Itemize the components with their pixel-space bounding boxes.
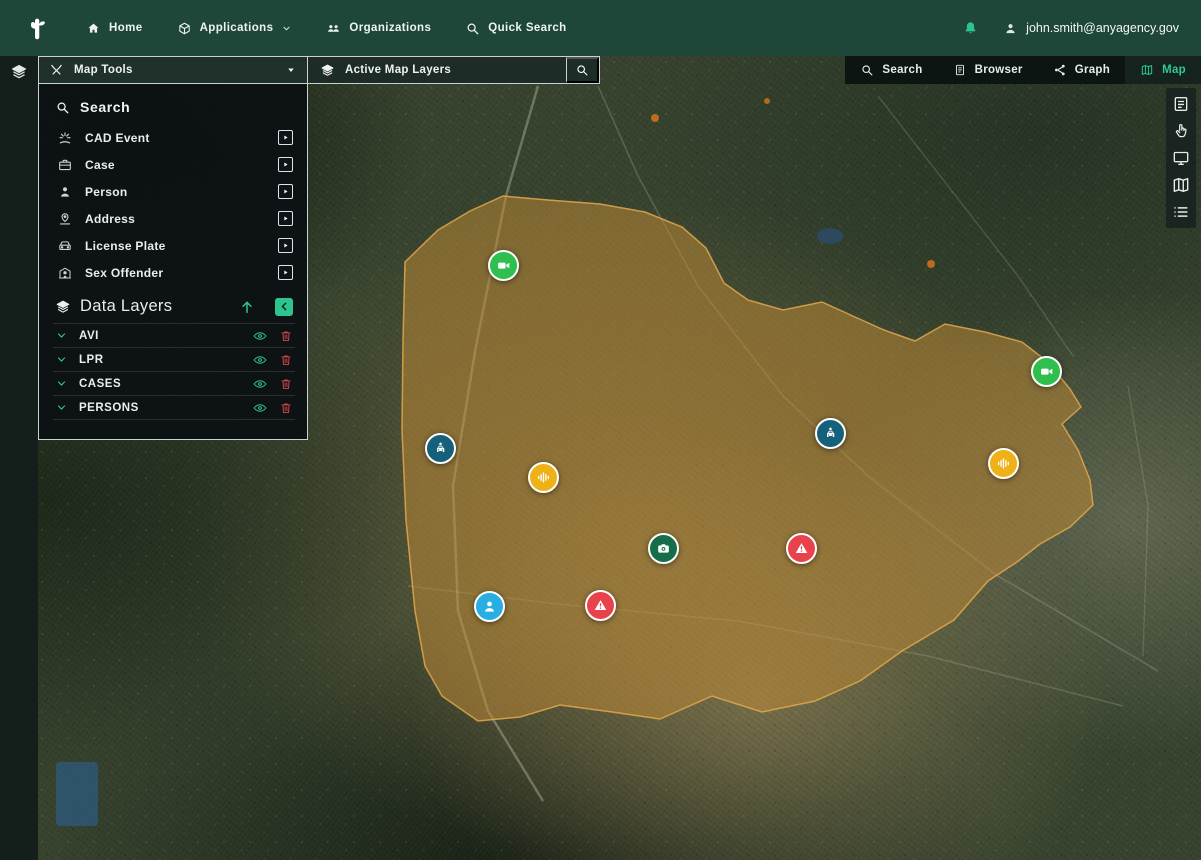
left-rail: [0, 56, 38, 860]
search-item-label: Case: [85, 158, 115, 172]
case-icon: [57, 157, 73, 173]
marker-person[interactable]: [474, 591, 505, 622]
document-icon: [953, 63, 967, 77]
search-section-title: Search: [80, 99, 130, 115]
view-button-search[interactable]: Search: [845, 56, 937, 84]
eye-visibility-icon[interactable]: [252, 400, 268, 416]
expand-sex-offender-button[interactable]: [278, 265, 293, 280]
search-item-label: Address: [85, 212, 135, 226]
search-item-label: License Plate: [85, 239, 166, 253]
view-button-graph[interactable]: Graph: [1038, 56, 1125, 84]
user-email: john.smith@anyagency.gov: [1026, 21, 1179, 35]
marker-audio-sensor[interactable]: [528, 462, 559, 493]
caret-down-icon: [285, 64, 297, 76]
eye-visibility-icon[interactable]: [252, 328, 268, 344]
marker-alert[interactable]: [585, 590, 616, 621]
layer-row-persons: PERSONS: [53, 395, 295, 420]
graph-icon: [1053, 63, 1067, 77]
brand-logo[interactable]: [22, 7, 52, 49]
layer-label: PERSONS: [79, 402, 139, 414]
search-icon: [575, 63, 589, 77]
view-switch-bar: SearchBrowserGraphMap: [845, 56, 1201, 84]
nav-item-label: Organizations: [349, 22, 431, 34]
view-button-label: Search: [882, 64, 922, 76]
collapse-panel-button[interactable]: [275, 298, 293, 316]
data-layer-list: AVILPRCASESPERSONS: [53, 323, 295, 420]
organizations-icon: [326, 21, 341, 36]
expand-case-button[interactable]: [278, 157, 293, 172]
trash-icon[interactable]: [279, 377, 293, 391]
map-tools-dropdown[interactable]: Map Tools: [38, 56, 308, 84]
view-button-label: Graph: [1075, 64, 1110, 76]
chevron-down-icon[interactable]: [55, 401, 68, 414]
marker-video-camera[interactable]: [488, 250, 519, 281]
marker-avi-vehicle[interactable]: [815, 418, 846, 449]
person-icon: [57, 184, 73, 200]
trash-icon[interactable]: [279, 353, 293, 367]
search-icon: [860, 63, 874, 77]
trash-icon[interactable]: [279, 329, 293, 343]
notification-bell-icon[interactable]: [962, 20, 979, 37]
layers-icon: [55, 299, 71, 315]
layer-label: CASES: [79, 378, 121, 390]
data-layers-header: Data Layers: [53, 286, 295, 323]
layer-row-lpr: LPR: [53, 347, 295, 371]
search-item-case[interactable]: Case: [53, 151, 295, 178]
nav-item-applications[interactable]: Applications: [177, 21, 293, 36]
trash-icon[interactable]: [279, 401, 293, 415]
license-plate-icon: [57, 238, 73, 254]
cad-event-icon: [57, 130, 73, 146]
nav-item-label: Applications: [200, 22, 274, 34]
nav-item-label: Home: [109, 22, 143, 34]
active-map-layers-bar[interactable]: Active Map Layers: [308, 56, 600, 84]
top-nav: HomeApplicationsOrganizationsQuick Searc…: [0, 0, 1201, 56]
layers-icon: [320, 63, 335, 78]
search-section-header: Search: [53, 92, 295, 124]
search-item-cad-event[interactable]: CAD Event: [53, 124, 295, 151]
map-icon: [1140, 63, 1154, 77]
view-button-browser[interactable]: Browser: [938, 56, 1038, 84]
nav-item-quick-search[interactable]: Quick Search: [465, 21, 566, 36]
marker-audio-sensor[interactable]: [988, 448, 1019, 479]
search-icon: [465, 21, 480, 36]
user-menu[interactable]: john.smith@anyagency.gov: [1003, 21, 1179, 36]
pointer-hand-icon[interactable]: [1171, 121, 1191, 141]
map-tools-panel: Map Tools Search CAD EventCasePersonAddr…: [38, 56, 308, 440]
expand-address-button[interactable]: [278, 211, 293, 226]
eye-visibility-icon[interactable]: [252, 352, 268, 368]
main-nav: HomeApplicationsOrganizationsQuick Searc…: [86, 21, 567, 36]
expand-cad-event-button[interactable]: [278, 130, 293, 145]
active-map-layers-label: Active Map Layers: [345, 64, 451, 76]
marker-avi-vehicle[interactable]: [425, 433, 456, 464]
arrow-up-icon[interactable]: [238, 298, 256, 316]
map-tools-label: Map Tools: [74, 64, 133, 76]
chevron-down-icon[interactable]: [55, 329, 68, 342]
list-icon[interactable]: [1171, 202, 1191, 222]
layers-search-button[interactable]: [566, 57, 599, 83]
marker-video-camera[interactable]: [1031, 356, 1062, 387]
chevron-down-icon[interactable]: [55, 353, 68, 366]
expand-license-plate-button[interactable]: [278, 238, 293, 253]
applications-icon: [177, 21, 192, 36]
search-items: CAD EventCasePersonAddressLicense PlateS…: [53, 124, 295, 286]
search-item-license-plate[interactable]: License Plate: [53, 232, 295, 259]
nav-item-label: Quick Search: [488, 22, 566, 34]
data-layers-title: Data Layers: [80, 297, 172, 316]
search-item-label: CAD Event: [85, 131, 150, 145]
view-button-map[interactable]: Map: [1125, 56, 1201, 84]
user-icon: [1003, 21, 1018, 36]
topnav-right: john.smith@anyagency.gov: [962, 20, 1179, 37]
view-button-label: Browser: [975, 64, 1023, 76]
layer-label: AVI: [79, 330, 99, 342]
layer-row-avi: AVI: [53, 323, 295, 347]
home-icon: [86, 21, 101, 36]
monitor-icon[interactable]: [1171, 148, 1191, 168]
search-item-person[interactable]: Person: [53, 178, 295, 205]
layer-row-cases: CASES: [53, 371, 295, 395]
map-canvas[interactable]: Map Tools Search CAD EventCasePersonAddr…: [38, 56, 1201, 860]
sex-offender-icon: [57, 265, 73, 281]
marker-photo-camera[interactable]: [648, 533, 679, 564]
expand-person-button[interactable]: [278, 184, 293, 199]
chevron-down-icon: [281, 23, 292, 34]
right-tool-rail: [1166, 88, 1196, 228]
search-item-label: Person: [85, 185, 127, 199]
address-icon: [57, 211, 73, 227]
tools-icon: [49, 63, 64, 78]
nav-item-home[interactable]: Home: [86, 21, 143, 36]
layer-label: LPR: [79, 354, 104, 366]
search-item-address[interactable]: Address: [53, 205, 295, 232]
view-button-label: Map: [1162, 64, 1186, 76]
map-icon[interactable]: [1171, 175, 1191, 195]
eye-visibility-icon[interactable]: [252, 376, 268, 392]
layers-toggle-icon[interactable]: [10, 63, 28, 81]
map-tools-body: Search CAD EventCasePersonAddressLicense…: [38, 84, 308, 440]
app-window: HomeApplicationsOrganizationsQuick Searc…: [0, 0, 1201, 860]
search-item-sex-offender[interactable]: Sex Offender: [53, 259, 295, 286]
chevron-left-icon: [278, 300, 291, 313]
nav-item-organizations[interactable]: Organizations: [326, 21, 431, 36]
notes-icon[interactable]: [1171, 94, 1191, 114]
marker-alert[interactable]: [786, 533, 817, 564]
cactus-logo-icon: [22, 7, 52, 49]
chevron-down-icon[interactable]: [55, 377, 68, 390]
search-icon: [55, 100, 70, 115]
search-item-label: Sex Offender: [85, 266, 163, 280]
